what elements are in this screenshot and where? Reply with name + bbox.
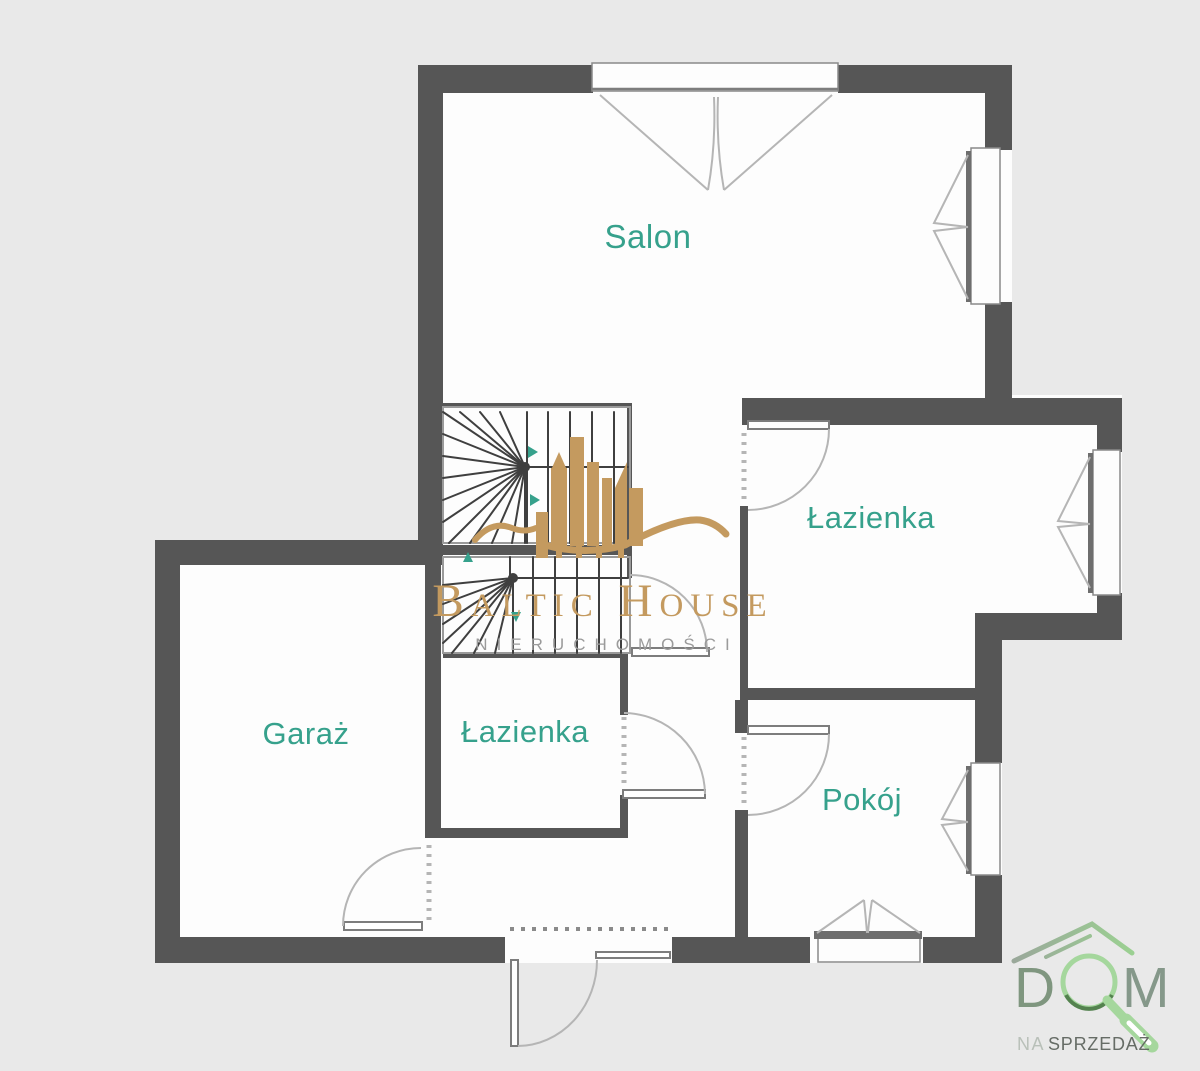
floorplan-svg: Salon Łazienka Łazienka Garaż Pokój Balt… — [0, 0, 1200, 1071]
room-label-lazienka-left: Łazienka — [461, 714, 589, 749]
baltic-house-brand-text: Baltic House — [432, 575, 773, 627]
room-label-salon: Salon — [605, 218, 692, 255]
logo-sprzedaz-text: SPRZEDAŻ — [1048, 1034, 1150, 1054]
logo-letter-m: M — [1122, 956, 1169, 1020]
room-label-garaz: Garaż — [263, 716, 350, 751]
dom-na-sprzedaz-logo: D M NA SPRZEDAŻ — [1014, 924, 1169, 1054]
logo-na-text: NA — [1017, 1034, 1045, 1054]
room-label-pokoj: Pokój — [822, 782, 902, 817]
floorplan-image: Salon Łazienka Łazienka Garaż Pokój Balt… — [0, 0, 1200, 1071]
room-label-lazienka-right: Łazienka — [807, 500, 935, 535]
logo-letter-d: D — [1014, 956, 1055, 1020]
baltic-house-subtitle: NIERUCHOMOŚCI — [475, 635, 738, 654]
